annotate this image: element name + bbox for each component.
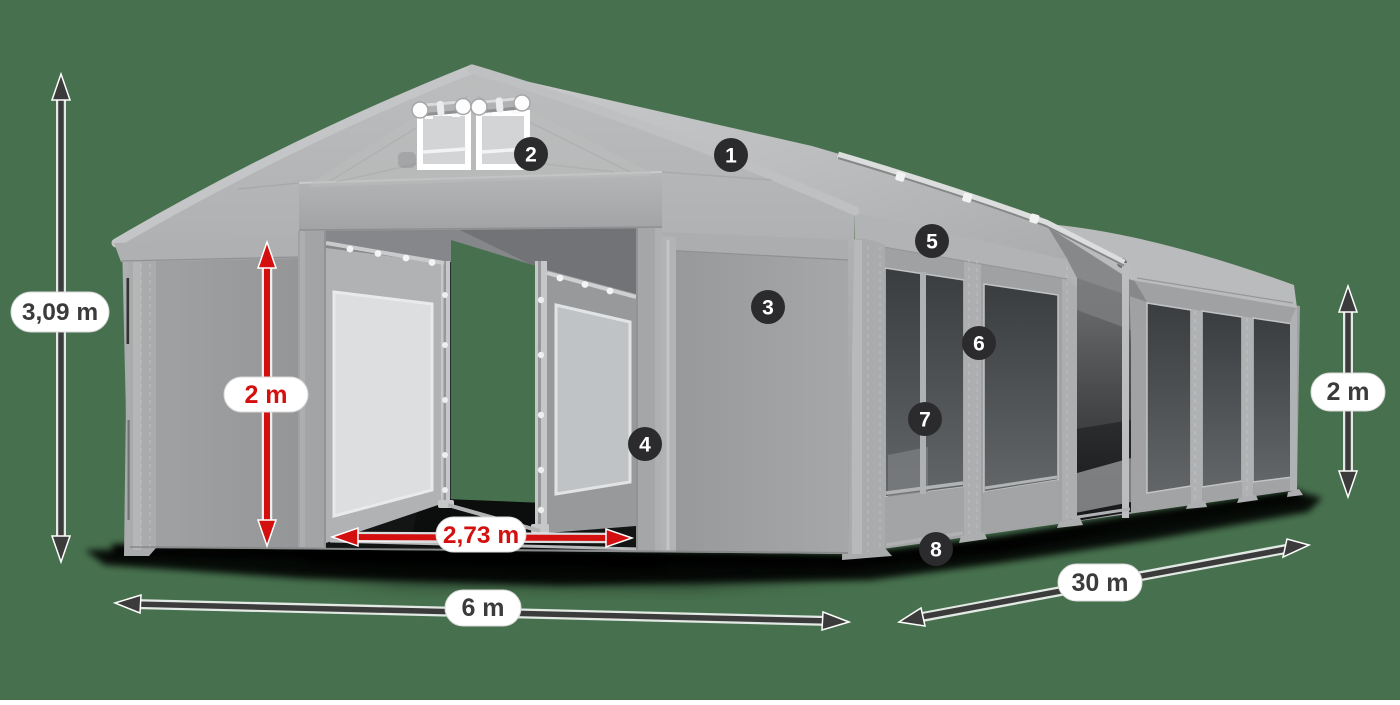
svg-text:6: 6: [973, 333, 985, 356]
svg-text:2 m: 2 m: [1326, 378, 1369, 406]
svg-text:5: 5: [926, 231, 938, 254]
svg-text:3,09 m: 3,09 m: [22, 299, 98, 326]
svg-text:30 m: 30 m: [1072, 569, 1129, 597]
svg-text:2: 2: [525, 144, 537, 167]
svg-text:6 m: 6 m: [461, 594, 504, 622]
svg-text:1: 1: [725, 145, 737, 168]
svg-text:8: 8: [930, 539, 942, 562]
svg-text:4: 4: [639, 434, 651, 457]
svg-text:2,73 m: 2,73 m: [443, 522, 519, 549]
svg-text:7: 7: [919, 409, 931, 432]
svg-text:2 m: 2 m: [244, 381, 287, 409]
svg-text:3: 3: [762, 297, 774, 320]
